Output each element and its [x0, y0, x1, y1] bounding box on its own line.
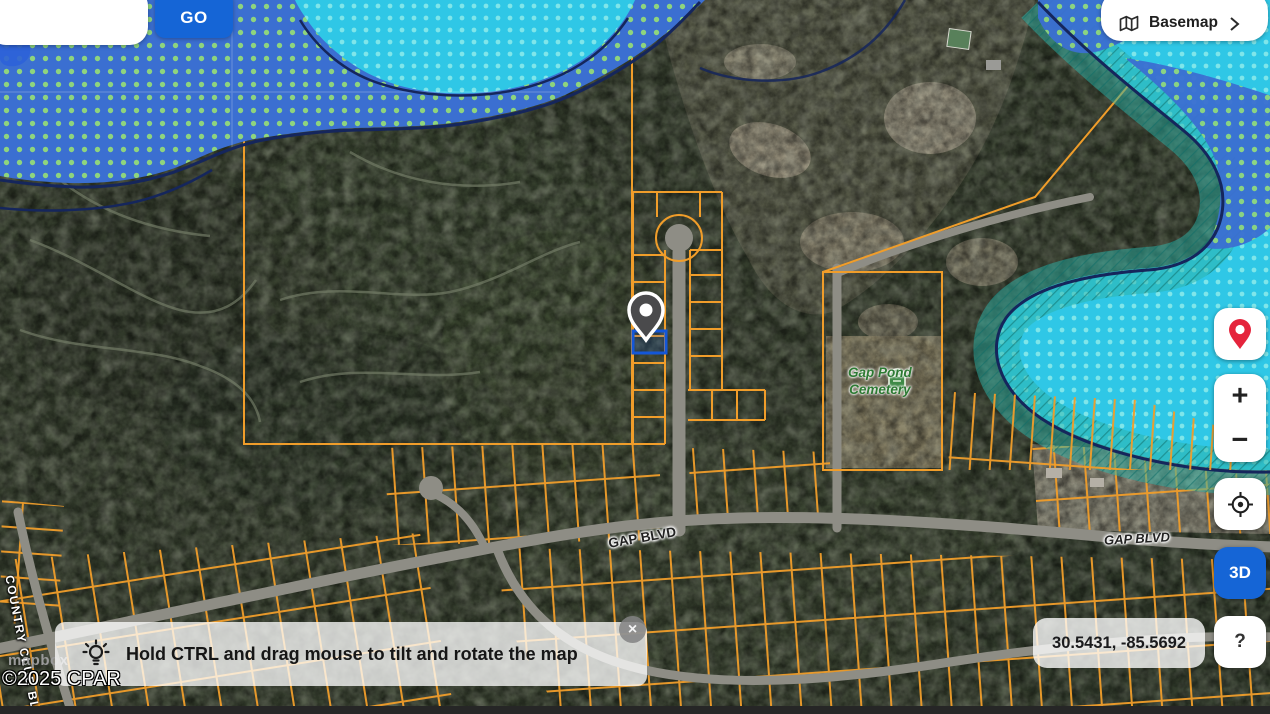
go-button[interactable]: GO — [155, 0, 233, 38]
attribution-copyright: ©2025 CPAR — [2, 668, 121, 691]
zoom-in-button[interactable]: + — [1214, 374, 1266, 418]
tip-close-button[interactable]: × — [619, 616, 646, 643]
drop-pin-button[interactable] — [1214, 308, 1266, 360]
tip-banner-text: Hold CTRL and drag mouse to tilt and rot… — [126, 644, 578, 665]
tip-bulb-icon — [81, 639, 111, 669]
zoom-out-button[interactable]: − — [1214, 418, 1266, 462]
zoom-control: + − — [1214, 374, 1266, 462]
chevron-right-icon — [1228, 16, 1240, 32]
crosshair-icon — [1227, 491, 1254, 518]
map-icon — [1119, 15, 1139, 32]
geolocate-button[interactable] — [1214, 478, 1266, 530]
search-input[interactable] — [6, 6, 136, 36]
window-bottom-edge — [0, 706, 1270, 714]
tip-banner: Hold CTRL and drag mouse to tilt and rot… — [55, 622, 647, 686]
three-d-button[interactable]: 3D — [1214, 547, 1266, 599]
basemap-label: Basemap — [1149, 14, 1218, 32]
coordinates-readout: 30.5431, -85.5692 — [1033, 618, 1205, 668]
map-application: GAP BLVD GAP BLVD Gap Pond Cemetery COUN… — [0, 0, 1270, 714]
basemap-button[interactable]: Basemap — [1101, 0, 1268, 41]
red-pin-icon — [1227, 318, 1253, 351]
help-button[interactable]: ? — [1214, 616, 1266, 668]
map-canvas[interactable] — [0, 0, 1270, 714]
search-box[interactable] — [0, 0, 148, 45]
